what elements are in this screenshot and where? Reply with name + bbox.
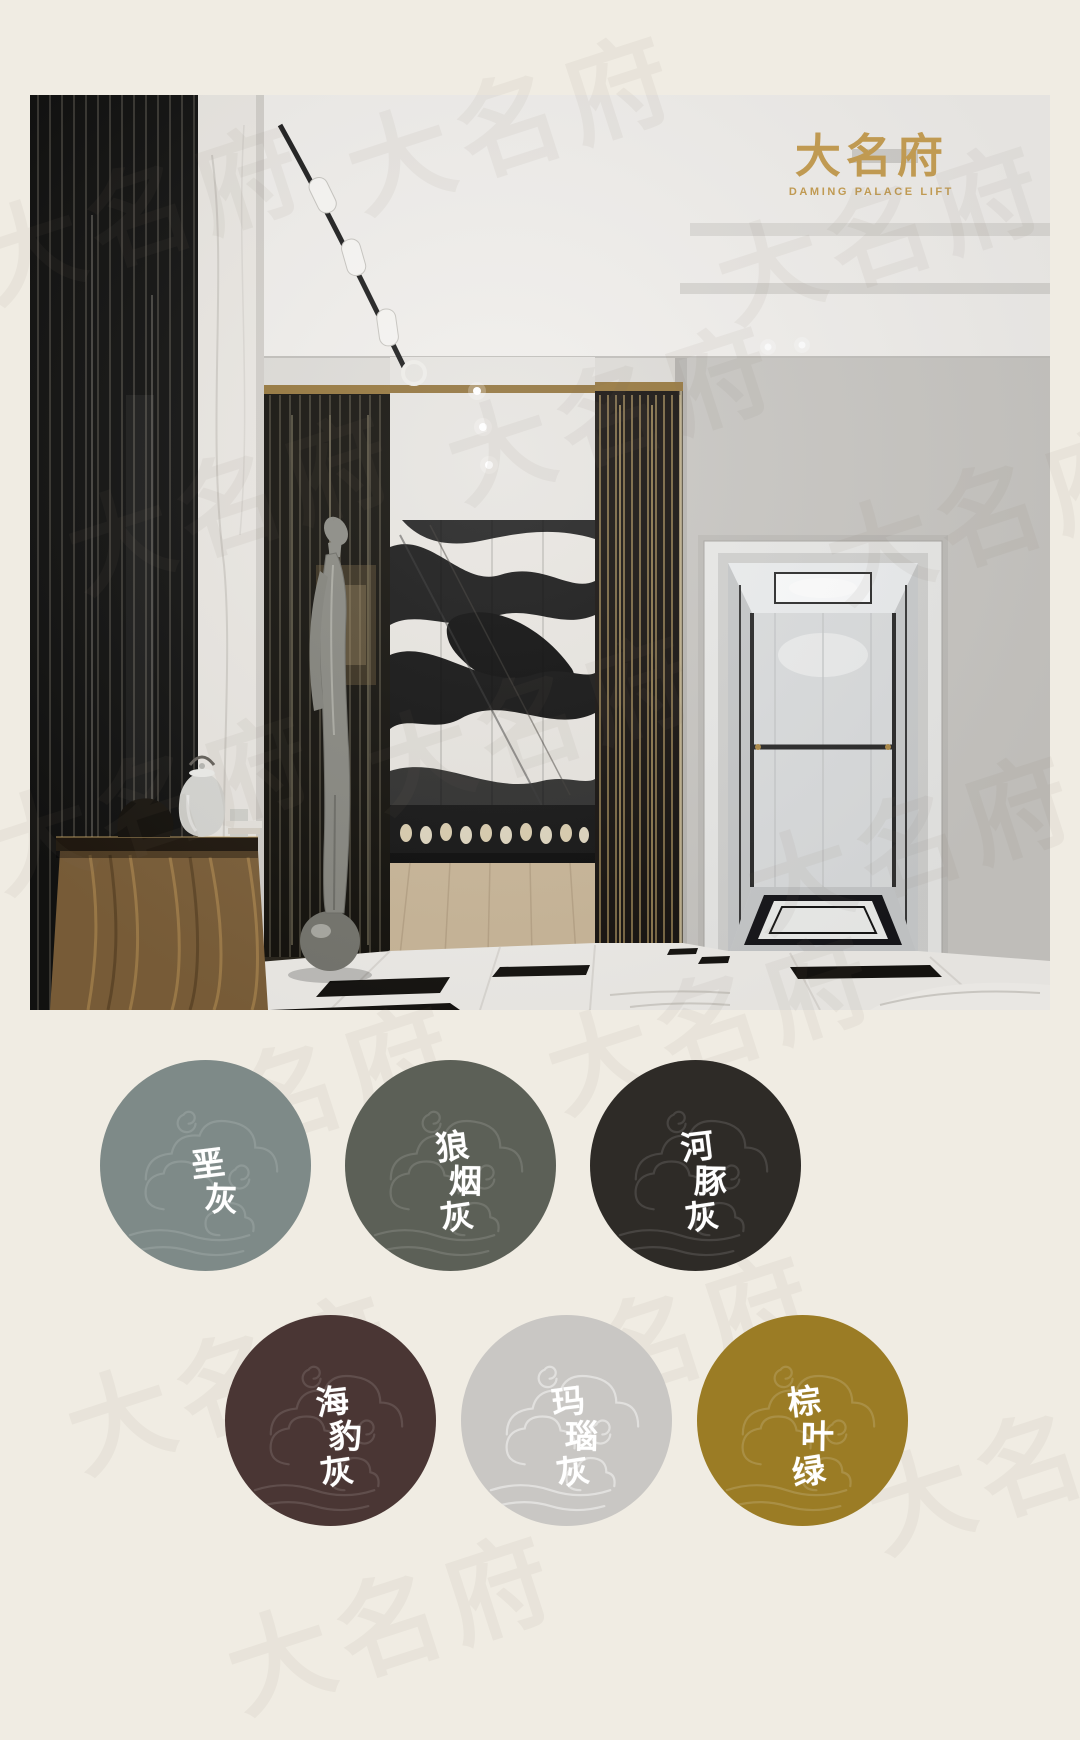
color-palette: 垩 灰 狼 烟 灰 [0,1060,1080,1620]
color-name-char: 灰 [683,1197,721,1237]
color-name: 棕 叶 绿 [701,1327,908,1526]
color-swatch-manao-hui: 玛 瑙 灰 [461,1315,672,1526]
brand-logo-en: DAMING PALACE LIFT [789,186,954,198]
color-swatch-hetun-hui: 河 豚 灰 [590,1060,801,1271]
color-name-char: 棕 [786,1382,823,1421]
color-name: 海 豹 灰 [229,1327,436,1526]
right-partition [595,382,683,966]
marble-feature-wall [390,520,595,832]
color-name-char: 灰 [318,1452,356,1492]
color-name-char: 垩 [189,1145,226,1184]
color-swatch-langyan-hui: 狼 烟 灰 [345,1060,556,1271]
color-name-char: 狼 [434,1127,471,1166]
color-name-char: 玛 [550,1382,587,1421]
showroom-scene-art [30,95,1050,1010]
brand-logo: 大名府 DAMING PALACE LIFT [789,133,954,198]
palette-row-2: 海 豹 灰 玛 瑙 灰 [225,1315,908,1526]
color-name: 垩 灰 [104,1072,311,1271]
color-name: 玛 瑙 灰 [465,1327,672,1526]
color-name-char: 烟 [449,1163,483,1199]
color-name-char: 瑙 [565,1418,599,1454]
poster-page: { "page": { "background": "#f0ece3" }, "… [0,0,1080,1684]
brand-logo-cn: 大名府 [789,133,954,179]
color-name-char: 海 [314,1382,351,1421]
elevator [698,535,948,973]
color-swatch-e-hui: 垩 灰 [100,1060,311,1271]
color-swatch-zongye-lv: 棕 叶 绿 [697,1315,908,1526]
palette-row-1: 垩 灰 狼 烟 灰 [100,1060,801,1271]
color-name-char: 豹 [329,1418,363,1454]
color-name-char: 绿 [790,1452,828,1492]
fireplace [390,805,595,955]
color-name-char: 灰 [554,1452,592,1492]
color-name-char: 河 [679,1127,716,1166]
color-name-char: 灰 [204,1181,238,1217]
color-name-char: 豚 [694,1163,728,1199]
color-name: 河 豚 灰 [594,1072,801,1271]
color-name-char: 灰 [438,1197,476,1237]
color-name: 狼 烟 灰 [349,1072,556,1271]
color-swatch-haibao-hui: 海 豹 灰 [225,1315,436,1526]
color-name-char: 叶 [801,1418,835,1454]
showroom-photo: 大名府 DAMING PALACE LIFT [30,95,1050,1010]
